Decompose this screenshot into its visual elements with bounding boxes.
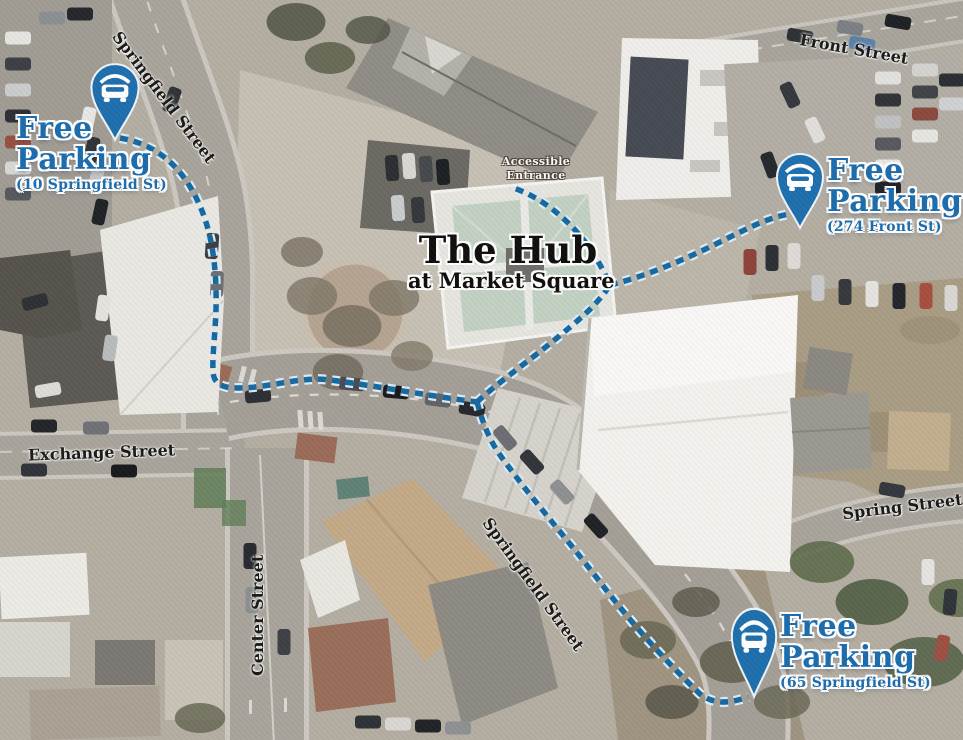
route-ne xyxy=(610,214,790,285)
accessible-entrance-line2: Entrance xyxy=(494,169,578,183)
hub-label: The Hub at Market Square xyxy=(408,232,608,291)
parking-pin-ne xyxy=(773,150,827,234)
route-hub-halo xyxy=(477,187,610,402)
free-parking-line1: Free xyxy=(16,114,167,145)
free-parking-line1: Free xyxy=(827,156,962,187)
car-parking-pin-icon xyxy=(773,150,827,230)
street-label-center: Center Street xyxy=(248,555,267,676)
route-hub xyxy=(477,187,610,402)
free-parking-label-nw: Free Parking (10 Springfield St) xyxy=(16,114,167,192)
hub-title: The Hub xyxy=(408,232,608,269)
free-parking-address: (274 Front St) xyxy=(827,220,962,234)
free-parking-line1: Free xyxy=(780,612,931,643)
free-parking-label-ne: Free Parking (274 Front St) xyxy=(827,156,962,234)
car-parking-pin-icon xyxy=(728,604,780,699)
free-parking-address: (65 Springfield St) xyxy=(780,676,931,690)
free-parking-line2: Parking xyxy=(780,643,931,674)
parking-map: Free Parking (10 Springfield St) Free Pa… xyxy=(0,0,963,740)
free-parking-address: (10 Springfield St) xyxy=(16,178,167,192)
accessible-entrance-label: Accessible Entrance xyxy=(494,155,578,183)
free-parking-line2: Parking xyxy=(827,187,962,218)
free-parking-label-se: Free Parking (65 Springfield St) xyxy=(780,612,931,690)
parking-pin-se xyxy=(728,604,780,703)
hub-subtitle: at Market Square xyxy=(408,270,608,291)
free-parking-line2: Parking xyxy=(16,145,167,176)
accessible-entrance-line1: Accessible xyxy=(494,155,578,169)
